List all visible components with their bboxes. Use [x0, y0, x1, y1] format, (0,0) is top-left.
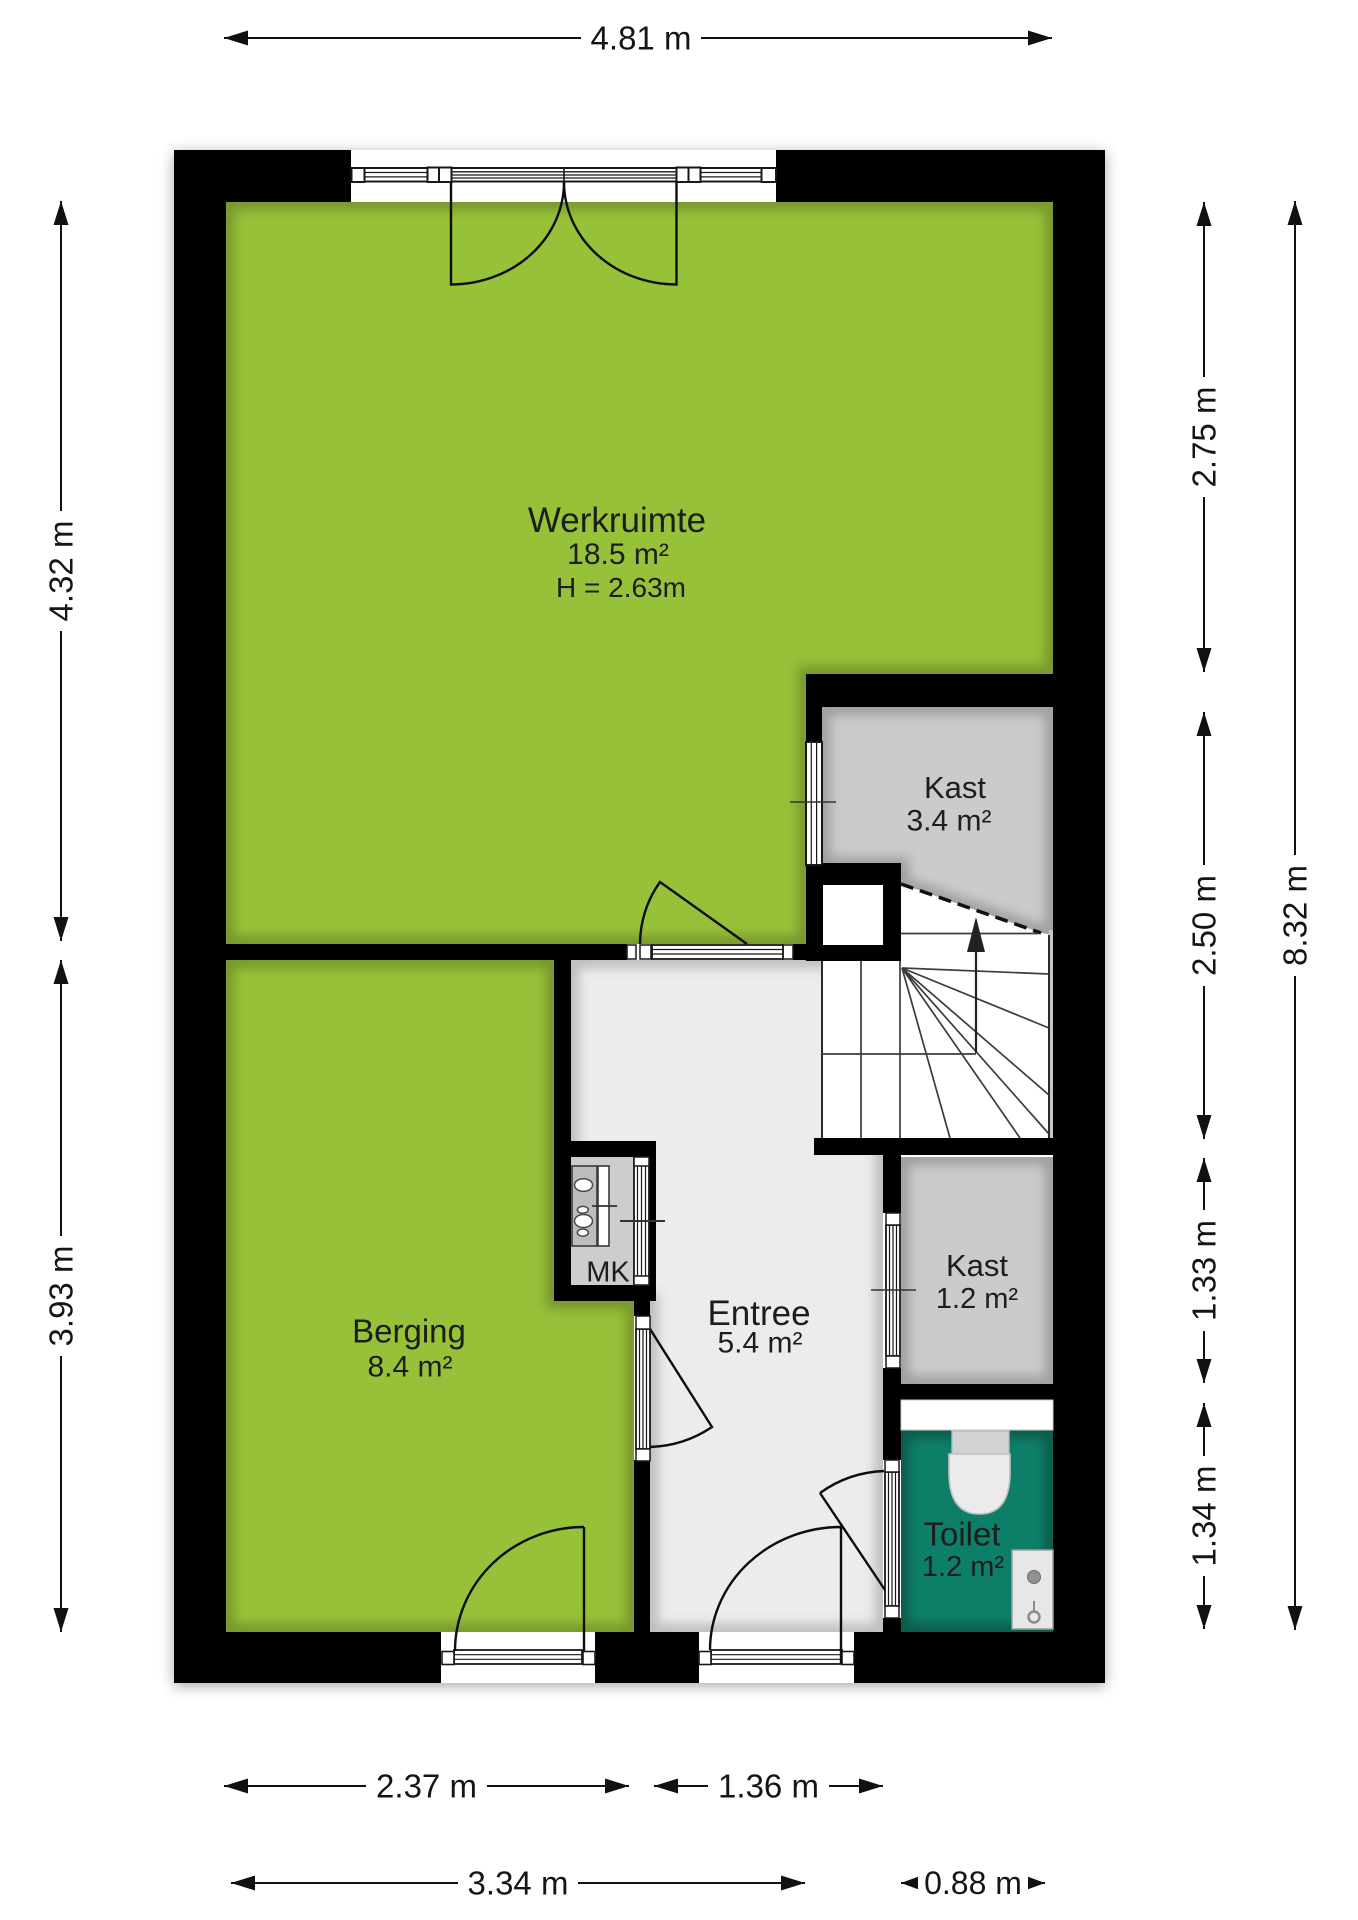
svg-text:1.34 m: 1.34 m [1186, 1466, 1223, 1567]
svg-text:8.4 m²: 8.4 m² [367, 1351, 452, 1384]
svg-text:0.88 m: 0.88 m [924, 1865, 1022, 1901]
svg-text:5.4 m²: 5.4 m² [717, 1327, 802, 1360]
svg-text:3.4 m²: 3.4 m² [906, 805, 991, 838]
svg-text:Berging: Berging [352, 1313, 466, 1350]
svg-text:Kast: Kast [946, 1248, 1008, 1283]
svg-text:2.50 m: 2.50 m [1186, 875, 1223, 976]
svg-text:1.2 m²: 1.2 m² [936, 1283, 1019, 1315]
svg-text:4.81 m: 4.81 m [591, 20, 692, 57]
svg-text:1.2 m²: 1.2 m² [922, 1551, 1005, 1583]
svg-text:2.75 m: 2.75 m [1186, 387, 1223, 488]
svg-text:2.37 m: 2.37 m [376, 1768, 477, 1805]
svg-text:4.32 m: 4.32 m [43, 521, 80, 622]
svg-text:MK: MK [586, 1257, 630, 1289]
svg-text:3.34 m: 3.34 m [468, 1865, 569, 1902]
svg-text:3.93 m: 3.93 m [43, 1246, 80, 1347]
svg-text:18.5 m²: 18.5 m² [567, 538, 669, 571]
svg-text:Werkruimte: Werkruimte [528, 501, 706, 540]
svg-text:H = 2.63m: H = 2.63m [556, 572, 686, 603]
svg-text:1.33 m: 1.33 m [1186, 1220, 1223, 1321]
svg-text:8.32 m: 8.32 m [1277, 865, 1314, 966]
svg-text:Toilet: Toilet [923, 1516, 1000, 1553]
svg-text:1.36 m: 1.36 m [718, 1768, 819, 1805]
svg-text:Kast: Kast [924, 770, 986, 805]
